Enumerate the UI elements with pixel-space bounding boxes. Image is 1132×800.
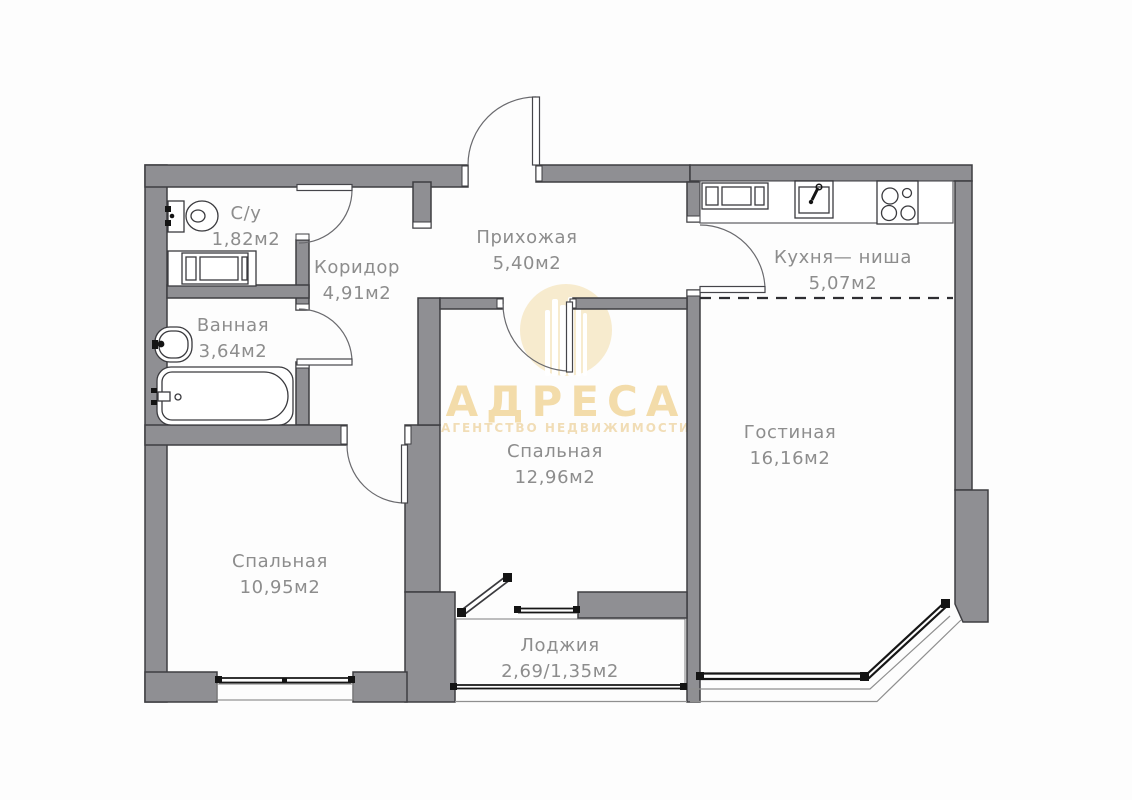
room-name: Лоджия: [501, 633, 619, 659]
room-name: Прихожая: [476, 225, 577, 251]
floorplan-canvas: АДРЕСА АГЕНТСТВО НЕДВИЖИМОСТИ: [0, 0, 1132, 800]
room-label-toilet: С/у 1,82м2: [212, 201, 281, 253]
room-label-hallway: Прихожая 5,40м2: [476, 225, 577, 277]
room-label-corridor: Коридор 4,91м2: [314, 255, 400, 307]
room-area: 12,96м2: [507, 465, 603, 491]
room-area: 4,91м2: [314, 281, 400, 307]
room-name: Гостиная: [744, 420, 837, 446]
room-label-loggia: Лоджия 2,69/1,35м2: [501, 633, 619, 685]
room-labels: С/у 1,82м2 Коридор 4,91м2 Прихожая 5,40м…: [0, 0, 1132, 800]
room-area: 1,82м2: [212, 227, 281, 253]
room-area: 16,16м2: [744, 446, 837, 472]
room-label-bathroom: Ванная 3,64м2: [197, 313, 269, 365]
room-label-kitchen-niche: Кухня— ниша 5,07м2: [774, 245, 912, 297]
room-area: 5,07м2: [774, 271, 912, 297]
room-area: 5,40м2: [476, 251, 577, 277]
room-name: Кухня— ниша: [774, 245, 912, 271]
room-label-bedroom-middle: Спальная 12,96м2: [507, 439, 603, 491]
room-label-bedroom-left: Спальная 10,95м2: [232, 549, 328, 601]
room-name: С/у: [212, 201, 281, 227]
room-name: Ванная: [197, 313, 269, 339]
room-name: Коридор: [314, 255, 400, 281]
room-area: 2,69/1,35м2: [501, 659, 619, 685]
room-name: Спальная: [507, 439, 603, 465]
room-label-living-room: Гостиная 16,16м2: [744, 420, 837, 472]
room-area: 10,95м2: [232, 575, 328, 601]
room-name: Спальная: [232, 549, 328, 575]
room-area: 3,64м2: [197, 339, 269, 365]
